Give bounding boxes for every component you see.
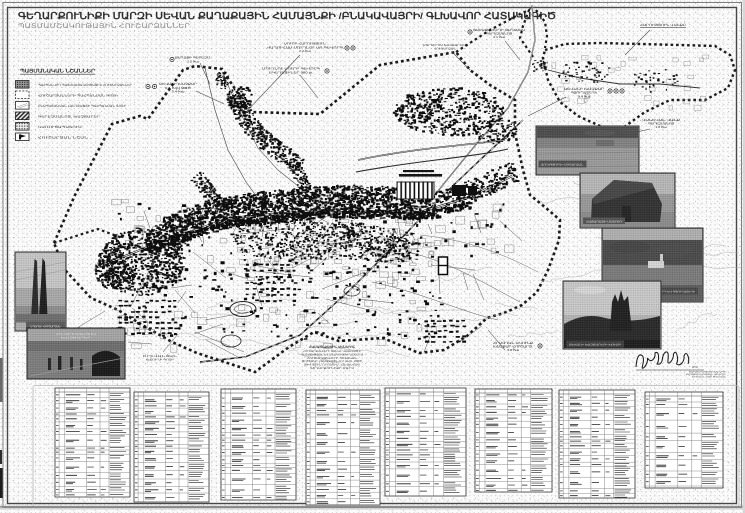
svg-text:ԽԱՉՔԱՐԵՐ: ԽԱՉՔԱՐԵՐ: [61, 336, 92, 340]
svg-text:3.4 հա: 3.4 հա: [172, 90, 185, 94]
svg-text:ԳԵՂԱՐՔՈՒՆԻՔԻ ՄԱՐԶ: ԳԵՂԱՐՔՈՒՆԻՔԻ ՄԱՐԶ: [310, 366, 355, 370]
svg-text:ՍԵՎԱՆԻ ԽԱՉՔԱՐԵՐԻ ԽՈՒՄԲ: ՍԵՎԱՆԻ ԽԱՉՔԱՐԵՐԻ ԽՈՒՄԲ: [569, 343, 621, 347]
svg-text:ՊԱՏՄԱՄՇԱԿՈՒԹԱՅԻՆ ՀՈՒՇԱՐՁԱՆՆԵՐ: ՊԱՏՄԱՄՇԱԿՈՒԹԱՅԻՆ ՀՈՒՇԱՐՁԱՆՆԵՐ: [18, 22, 191, 30]
svg-text:ՀՈՒՇԱՐՁԱՆՆԵՐԻ ՑԱՆԿԸ ԿԱԶՄՎԱԾ Է: ՀՈՒՇԱՐՁԱՆՆԵՐԻ ՑԱՆԿԸ ԿԱԶՄՎԱԾ Է: [303, 349, 361, 353]
svg-text:ՃԱՐՏԱՐԱՊԵՏԱԿԱՆ ՍՊԸ: ՃԱՐՏԱՐԱՊԵՏԱԿԱՆ ՍՊԸ: [689, 370, 727, 373]
svg-text:ՀՈՒՇԱՐՁԱՆ ՆՇԱՆ: ՀՈՒՇԱՐՁԱՆ ՆՇԱՆ: [38, 135, 89, 139]
svg-text:ԲՆԱՊԱՏՄԱԿԱՆ ԼԱՆԴՇԱՖՏԻ ՊԱՀՊԱՆՄԱ: ԲՆԱՊԱՏՄԱԿԱՆ ԼԱՆԴՇԱՖՏԻ ՊԱՀՊԱՆՄԱՆ ԳՈՏԻ: [38, 104, 126, 108]
svg-text:ՄԱՐՏԻՐՈՍ ԽԱՉՔԱՐՆԵՐ: ՄԱՐՏԻՐՈՍ ԽԱՉՔԱՐՆԵՐ: [423, 43, 467, 47]
svg-text:ԹԻՎ 853-Ն ՈՐՈՇՈՒՄ, ՀԱՎԵԼՎԱԾ: ԹԻՎ 853-Ն ՈՐՈՇՈՒՄ, ՀԱՎԵԼՎԱԾ: [304, 363, 361, 367]
svg-text:ԳԵՐԵԶՄԱՆՈՑ, ԽԱՉՔԱՐԵՐ: ԳԵՐԵԶՄԱՆՈՑ, ԽԱՉՔԱՐԵՐ: [38, 114, 100, 118]
svg-text:ՀՈՒՇԱՐՁԱՆՆԵՐԻ ՊԱՀՊԱՆՄԱՆ ԳՈՏԻ: ՀՈՒՇԱՐՁԱՆՆԵՐԻ ՊԱՀՊԱՆՄԱՆ ԳՈՏԻ: [38, 93, 118, 97]
svg-text:2.2 հա: 2.2 հա: [187, 59, 199, 63]
svg-text:ՀԱՐՈՒԹՅՈՒՆ ՎԱՆՔԸ: ՀԱՐՈՒԹՅՈՒՆ ՎԱՆՔԸ: [640, 23, 686, 27]
svg-text:ՊԱՀՊԱՆՎՈՂ ՊԱՏՄԱՄՇԱԿՈՒԹԱՅԻՆ ՀՈՒ: ՊԱՀՊԱՆՎՈՂ ՊԱՏՄԱՄՇԱԿՈՒԹԱՅԻՆ ՀՈՒՇԱՐՁԱՆՆԵՐ: [38, 83, 132, 87]
svg-text:ՊԱՅՄԱՆԱԿԱՆ ՆՇԱՆՆԵՐ: ՊԱՅՄԱՆԱԿԱՆ ՆՇԱՆՆԵՐ: [20, 69, 96, 75]
svg-text:ՊԱՏՄՈՒԹՅԱՆ ԵՎ ՄՇԱԿՈՒՅԹԻ ԱՆՇԱՐԺ: ՊԱՏՄՈՒԹՅԱՆ ԵՎ ՄՇԱԿՈՒՅԹԻ ԱՆՇԱՐԺ: [301, 352, 364, 356]
svg-text:1.8 հա: 1.8 հա: [656, 125, 667, 129]
svg-text:ՀԱՄԱՅՆՔԱՅԻՆ ԿԵՆՏՐՈՆ: ՀԱՄԱՅՆՔԱՅԻՆ ԿԵՆՏՐՈՆ: [309, 345, 356, 349]
svg-text:ՀԱՑԱՌԱՏԻ ՄԱՏՈՒՌ: ՀԱՑԱՌԱՏԻ ՄԱՏՈՒՌ: [586, 220, 622, 223]
svg-text:ՍՊԸ: ՍՊԸ: [692, 365, 698, 369]
svg-text:4.1 հա: 4.1 հա: [493, 35, 505, 39]
svg-text:ՀՈՒՇԱՐՁԱՆ: ՀՈՒՇԱՐՁԱՆ: [434, 46, 457, 50]
svg-text:ՑՈՒՑԱԿԻ ՀԱՄԱՁԱՅՆ /ՀՀ ԿԱՌ. 2007: ՑՈՒՑԱԿԻ ՀԱՄԱՁԱՅՆ /ՀՀ ԿԱՌ. 2007/: [302, 359, 362, 363]
svg-text:ԽՃՈՒՂԻ ԳՈՏԻ: ԽՃՈՒՂԻ ԳՈՏԻ: [146, 358, 174, 362]
svg-text:ՁՈՐԱԳՅՈՒՂԻ ՀՈՒՇԱՐՁԱՆ: ՁՈՐԱԳՅՈՒՂԻ ՀՈՒՇԱՐՁԱՆ: [541, 163, 584, 167]
svg-text:3.8 հա: 3.8 հա: [507, 348, 519, 352]
svg-text:2.2 հա: 2.2 հա: [299, 49, 311, 53]
svg-text:ԿԱՌՈՒՑԱՊԱՏՈՒՄ: ԿԱՌՈՒՑԱՊԱՏՈՒՄ: [38, 125, 83, 129]
svg-text:ՀԻՆ ԳԵՐԵԶՄԱՆՈՑ ԵՎ: ՀԻՆ ԳԵՐԵԶՄԱՆՈՑ ԵՎ: [56, 332, 98, 336]
svg-text:9.4 հա: 9.4 հա: [578, 94, 590, 98]
svg-text:ԳԵՂԱՐՔՈՒՆԻՔԻ ՄԱՐԶԻ ՍԵՎԱՆ ՔԱՂԱՔ: ԳԵՂԱՐՔՈՒՆԻՔԻ ՄԱՐԶԻ ՍԵՎԱՆ ՔԱՂԱՔԱՅԻՆ ՀԱՄԱՅ…: [18, 11, 556, 21]
svg-text:ՀՈՒՇԱՐՁԱՆՆԵՐԻ ՊԵՏԱԿԱՆ: ՀՈՒՇԱՐՁԱՆՆԵՐԻ ՊԵՏԱԿԱՆ: [307, 356, 358, 360]
svg-text:ԵԿԵՂԵՑԻՆԵՐ 980 թ.: ԵԿԵՂԵՑԻՆԵՐ 980 թ.: [269, 70, 313, 74]
svg-text:ԵՐԵՎԱՆ 2009 ԹՎԱԿԱՆ: ԵՐԵՎԱՆ 2009 ԹՎԱԿԱՆ: [692, 376, 727, 379]
svg-text:ԵՐԵՎԱՆՅԱՆ: ԵՐԵՎԱՆՅԱՆ: [143, 354, 179, 358]
svg-text:ՔԱՂԱՔԱՇԻՆՈՒԹՅԱՆ ԿԵՆՏՐՈՆ: ՔԱՂԱՔԱՇԻՆՈՒԹՅԱՆ ԿԵՆՏՐՈՆ: [686, 373, 727, 376]
